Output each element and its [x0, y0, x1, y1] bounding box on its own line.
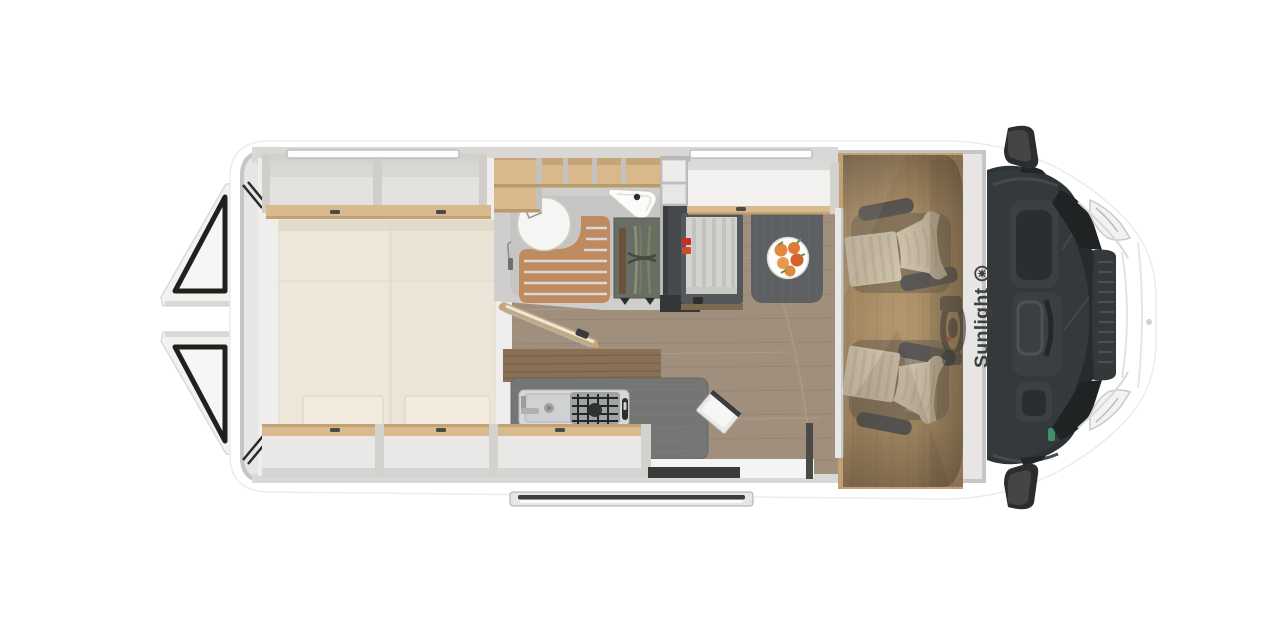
svg-text:Sunlight: Sunlight — [971, 287, 993, 368]
